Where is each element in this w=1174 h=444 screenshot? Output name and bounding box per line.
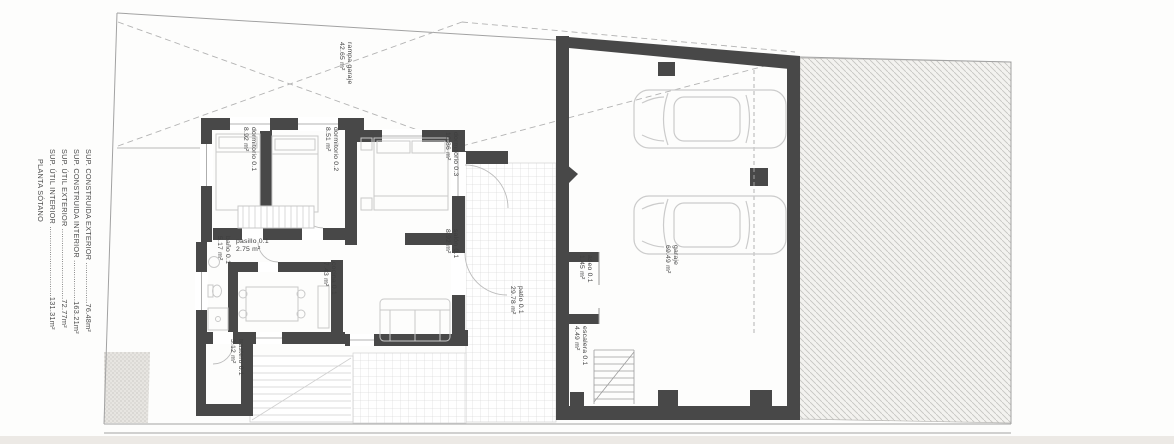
- garage-walls: [556, 36, 800, 420]
- label-cocina: cocina 0.17.43 m²: [320, 262, 337, 295]
- label-trastero: trastero 0.13.12 m²: [227, 339, 244, 376]
- label-patio: patio 0.129.78 m²: [507, 286, 524, 314]
- stairs: [594, 350, 634, 404]
- plan-title: PLANTA SÓTANO: [36, 159, 45, 222]
- bathroom-fixtures: [208, 257, 228, 331]
- left-stipple-area: [104, 352, 150, 423]
- label-escalera: escalera 0.14.49 m²: [571, 326, 588, 365]
- floorplan-page: PLANTA SÓTANO SUP. ÚTIL INTERIOR .......…: [0, 0, 1174, 444]
- sup-construida-exterior: SUP. CONSTRUIDA EXTERIOR ...............…: [84, 149, 93, 332]
- terrace-steps: [250, 356, 353, 422]
- label-garaje: garaje69.49 m²: [662, 245, 679, 273]
- car-1: [634, 90, 786, 148]
- label-dormitorio-0-1: dormitorio 0.18.92 m²: [240, 127, 257, 171]
- sofa: [380, 299, 450, 341]
- sup-util-exterior: SUP. ÚTIL EXTERIOR .....................…: [60, 149, 69, 328]
- label-dormitorio-0-3: dormitorio 0.310.86 m²: [442, 132, 459, 176]
- garage-pillar: [750, 168, 768, 186]
- bed-2: [272, 136, 318, 212]
- floorplan-drawing: [0, 0, 1174, 444]
- right-hatch-area: [799, 58, 1011, 423]
- bed-3: [361, 138, 448, 210]
- sup-construida-interior: SUP. CONSTRUIDA INTERIOR ...............…: [72, 149, 81, 334]
- label-rampa-garaje: rampa garaje42.65 m²: [336, 42, 353, 84]
- label-aseo: aseo 0.11.45 m²: [576, 255, 593, 283]
- kitchen-furniture: [239, 286, 329, 328]
- label-pasillo: pasillo 0.12.75 m²: [236, 238, 269, 255]
- car-2: [634, 196, 786, 254]
- label-dormitorio-0-2: dormitorio 0.28.51 m²: [322, 127, 339, 171]
- label-bano: baño 0.15.17 m²: [214, 236, 231, 264]
- wardrobe: [238, 206, 314, 228]
- sup-util-interior: SUP. ÚTIL INTERIOR .....................…: [48, 149, 57, 330]
- page-edge-strip: [0, 436, 1174, 444]
- label-salon: salón 0.18.92 m²: [442, 229, 459, 258]
- garage: [556, 36, 800, 420]
